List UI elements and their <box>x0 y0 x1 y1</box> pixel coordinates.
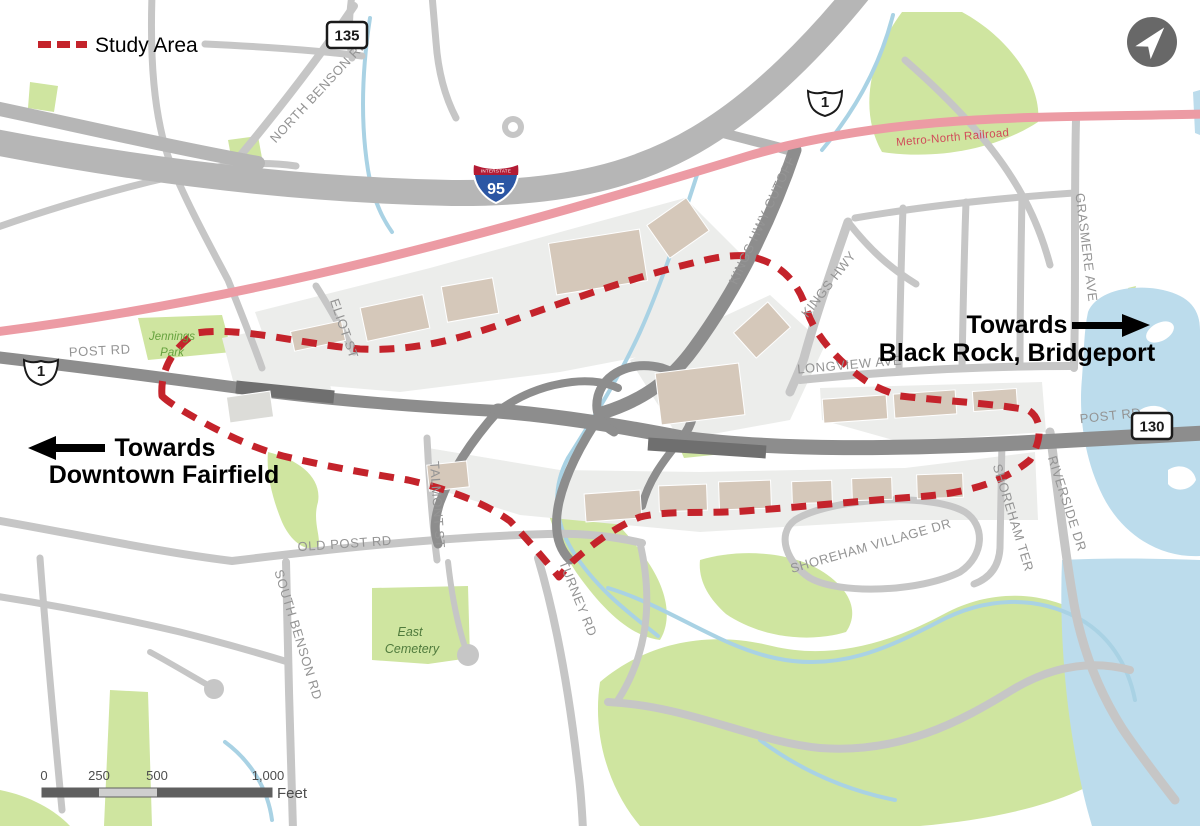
green-strip-bottom-left <box>104 690 152 826</box>
callout-east-line2: Black Rock, Bridgeport <box>879 339 1156 367</box>
scale-tick-0: 0 <box>40 768 47 783</box>
us-1-number: 1 <box>37 363 45 380</box>
shield-ct135: 135 <box>327 22 367 48</box>
cul-de-sac <box>457 644 479 666</box>
kings-hwy-cutoff-label: KINGS HWY CUTOFF <box>726 154 799 287</box>
legend-dash <box>38 41 51 48</box>
i95-number: 95 <box>487 181 505 198</box>
legend-dash <box>76 41 87 48</box>
legend-study-area-label: Study Area <box>95 34 198 57</box>
legend-dash <box>57 41 70 48</box>
us-1-number: 1 <box>821 94 829 111</box>
map-canvas: NORTH BENSON RD KINGS HWY CUTOFF KINGS H… <box>0 0 1200 826</box>
scale-segment <box>42 788 99 797</box>
scale-segment <box>99 788 157 797</box>
overpass <box>648 444 766 452</box>
water-bottom-right <box>1061 559 1200 826</box>
cul-de-sac-center <box>508 122 518 132</box>
interstate-header: INTERSTATE <box>481 169 511 174</box>
scale-unit-label: Feet <box>277 785 308 802</box>
jennings-park-label: Park <box>160 347 185 359</box>
route-135-number: 135 <box>334 28 359 45</box>
building <box>822 395 888 423</box>
legend: Study Area <box>38 34 198 57</box>
building <box>659 484 708 512</box>
callout-west-line1: Towards <box>115 434 216 462</box>
jennings-park-label: Jennings <box>148 331 195 343</box>
arrow-left-icon <box>28 436 105 460</box>
callout-west-line2: Downtown Fairfield <box>49 461 280 489</box>
building <box>792 480 833 503</box>
study-area-map: NORTH BENSON RD KINGS HWY CUTOFF KINGS H… <box>0 0 1200 826</box>
building <box>719 480 772 510</box>
scale-segment <box>157 788 272 797</box>
scale-tick-1000: 1,000 <box>252 768 285 783</box>
study-area-dash-icon <box>38 41 87 48</box>
shield-us1-north: 1 <box>808 91 842 116</box>
route-130-number: 130 <box>1139 419 1164 436</box>
scale-bar: 0 250 500 1,000 Feet <box>40 768 307 802</box>
cul-de-sac <box>204 679 224 699</box>
east-cemetery-label: East <box>397 625 423 639</box>
road <box>848 222 916 284</box>
building <box>226 391 273 423</box>
callout-east-line1: Towards <box>967 311 1068 339</box>
scale-tick-250: 250 <box>88 768 110 783</box>
building <box>655 363 745 425</box>
road <box>150 652 206 684</box>
park-patch <box>28 82 58 112</box>
north-arrow-icon <box>1127 17 1177 67</box>
shield-us1-west: 1 <box>24 360 58 385</box>
shield-ct130: 130 <box>1132 413 1172 439</box>
scale-tick-500: 500 <box>146 768 168 783</box>
post-rd-west-label: POST RD <box>69 341 131 359</box>
building <box>584 490 642 522</box>
road <box>432 0 456 118</box>
kings-hwy-label: KINGS HWY <box>798 248 859 320</box>
marsh-upper <box>700 553 852 637</box>
grasmere-ave <box>1074 120 1076 368</box>
south-benson-rd-label: SOUTH BENSON RD <box>271 568 325 702</box>
east-cemetery-label: Cemetery <box>385 642 440 656</box>
